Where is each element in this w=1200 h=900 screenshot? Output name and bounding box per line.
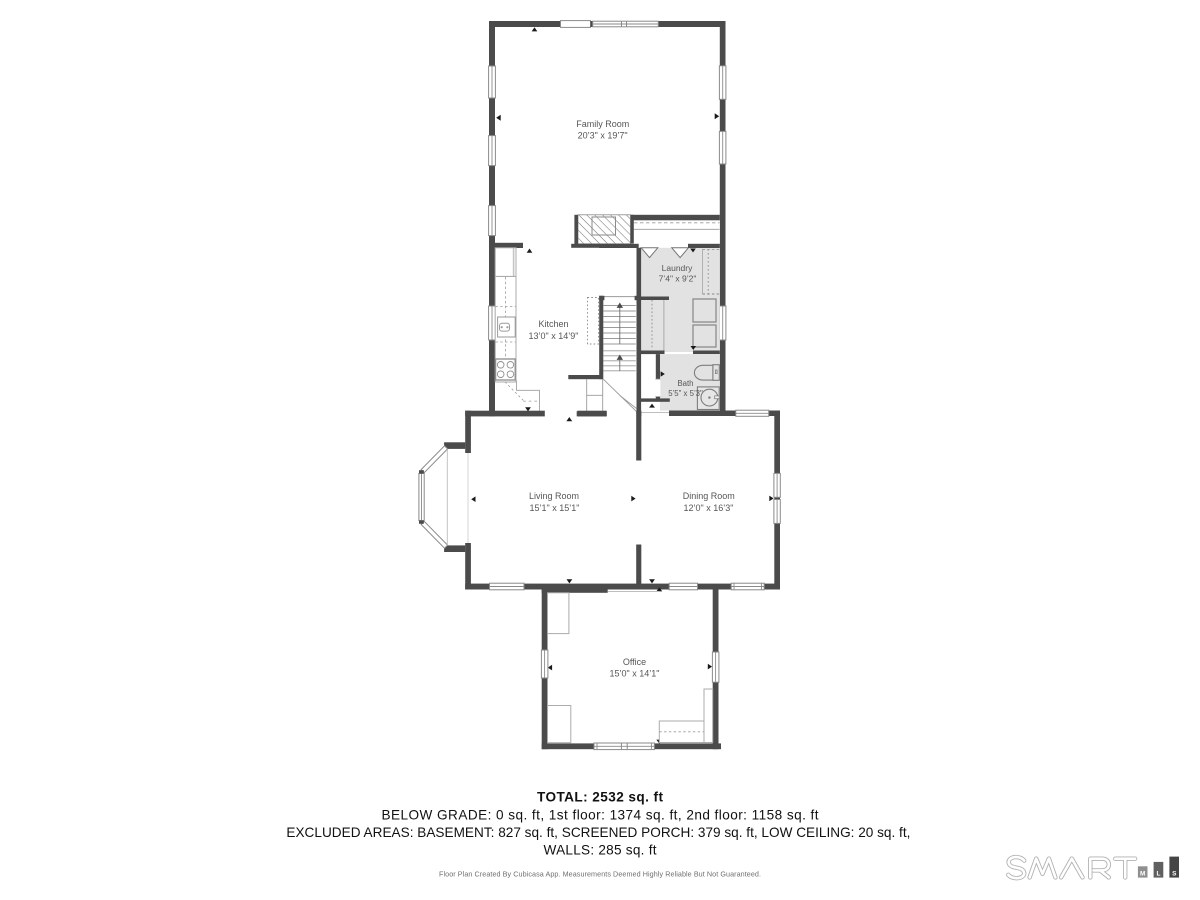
svg-text:12’0" x 16’3": 12’0" x 16’3" [684, 503, 734, 513]
svg-text:BELOW GRADE: 0 sq. ft, 1st flo: BELOW GRADE: 0 sq. ft, 1st floor: 1374 s… [382, 808, 819, 823]
svg-text:Laundry: Laundry [662, 263, 693, 273]
svg-text:7’4" x 9’2": 7’4" x 9’2" [659, 273, 697, 283]
svg-text:WALLS: 285 sq. ft: WALLS: 285 sq. ft [544, 843, 657, 858]
svg-text:EXCLUDED AREAS: BASEMENT: 827: EXCLUDED AREAS: BASEMENT: 827 sq. ft, SC… [286, 825, 910, 840]
svg-text:15’1" x 15’1": 15’1" x 15’1" [530, 503, 580, 513]
svg-text:20’3" x 19’7": 20’3" x 19’7" [578, 130, 628, 140]
svg-text:Office: Office [623, 657, 646, 667]
svg-text:TOTAL: 2532 sq. ft: TOTAL: 2532 sq. ft [537, 790, 663, 805]
svg-text:5’5" x 5’3": 5’5" x 5’3" [668, 389, 703, 398]
svg-text:M: M [1140, 871, 1145, 878]
svg-text:Floor Plan Created By Cubicasa: Floor Plan Created By Cubicasa App. Meas… [439, 870, 761, 879]
svg-text:15’0" x 14’1": 15’0" x 14’1" [610, 668, 660, 678]
svg-text:Kitchen: Kitchen [538, 319, 568, 329]
svg-text:Bath: Bath [677, 379, 693, 388]
svg-text:L: L [1157, 871, 1161, 878]
svg-text:S: S [1172, 871, 1177, 878]
svg-text:Dining Room: Dining Room [683, 491, 735, 501]
svg-text:Family Room: Family Room [576, 119, 629, 129]
svg-text:Living Room: Living Room [529, 491, 579, 501]
svg-text:13’0" x 14’9": 13’0" x 14’9" [529, 331, 579, 341]
